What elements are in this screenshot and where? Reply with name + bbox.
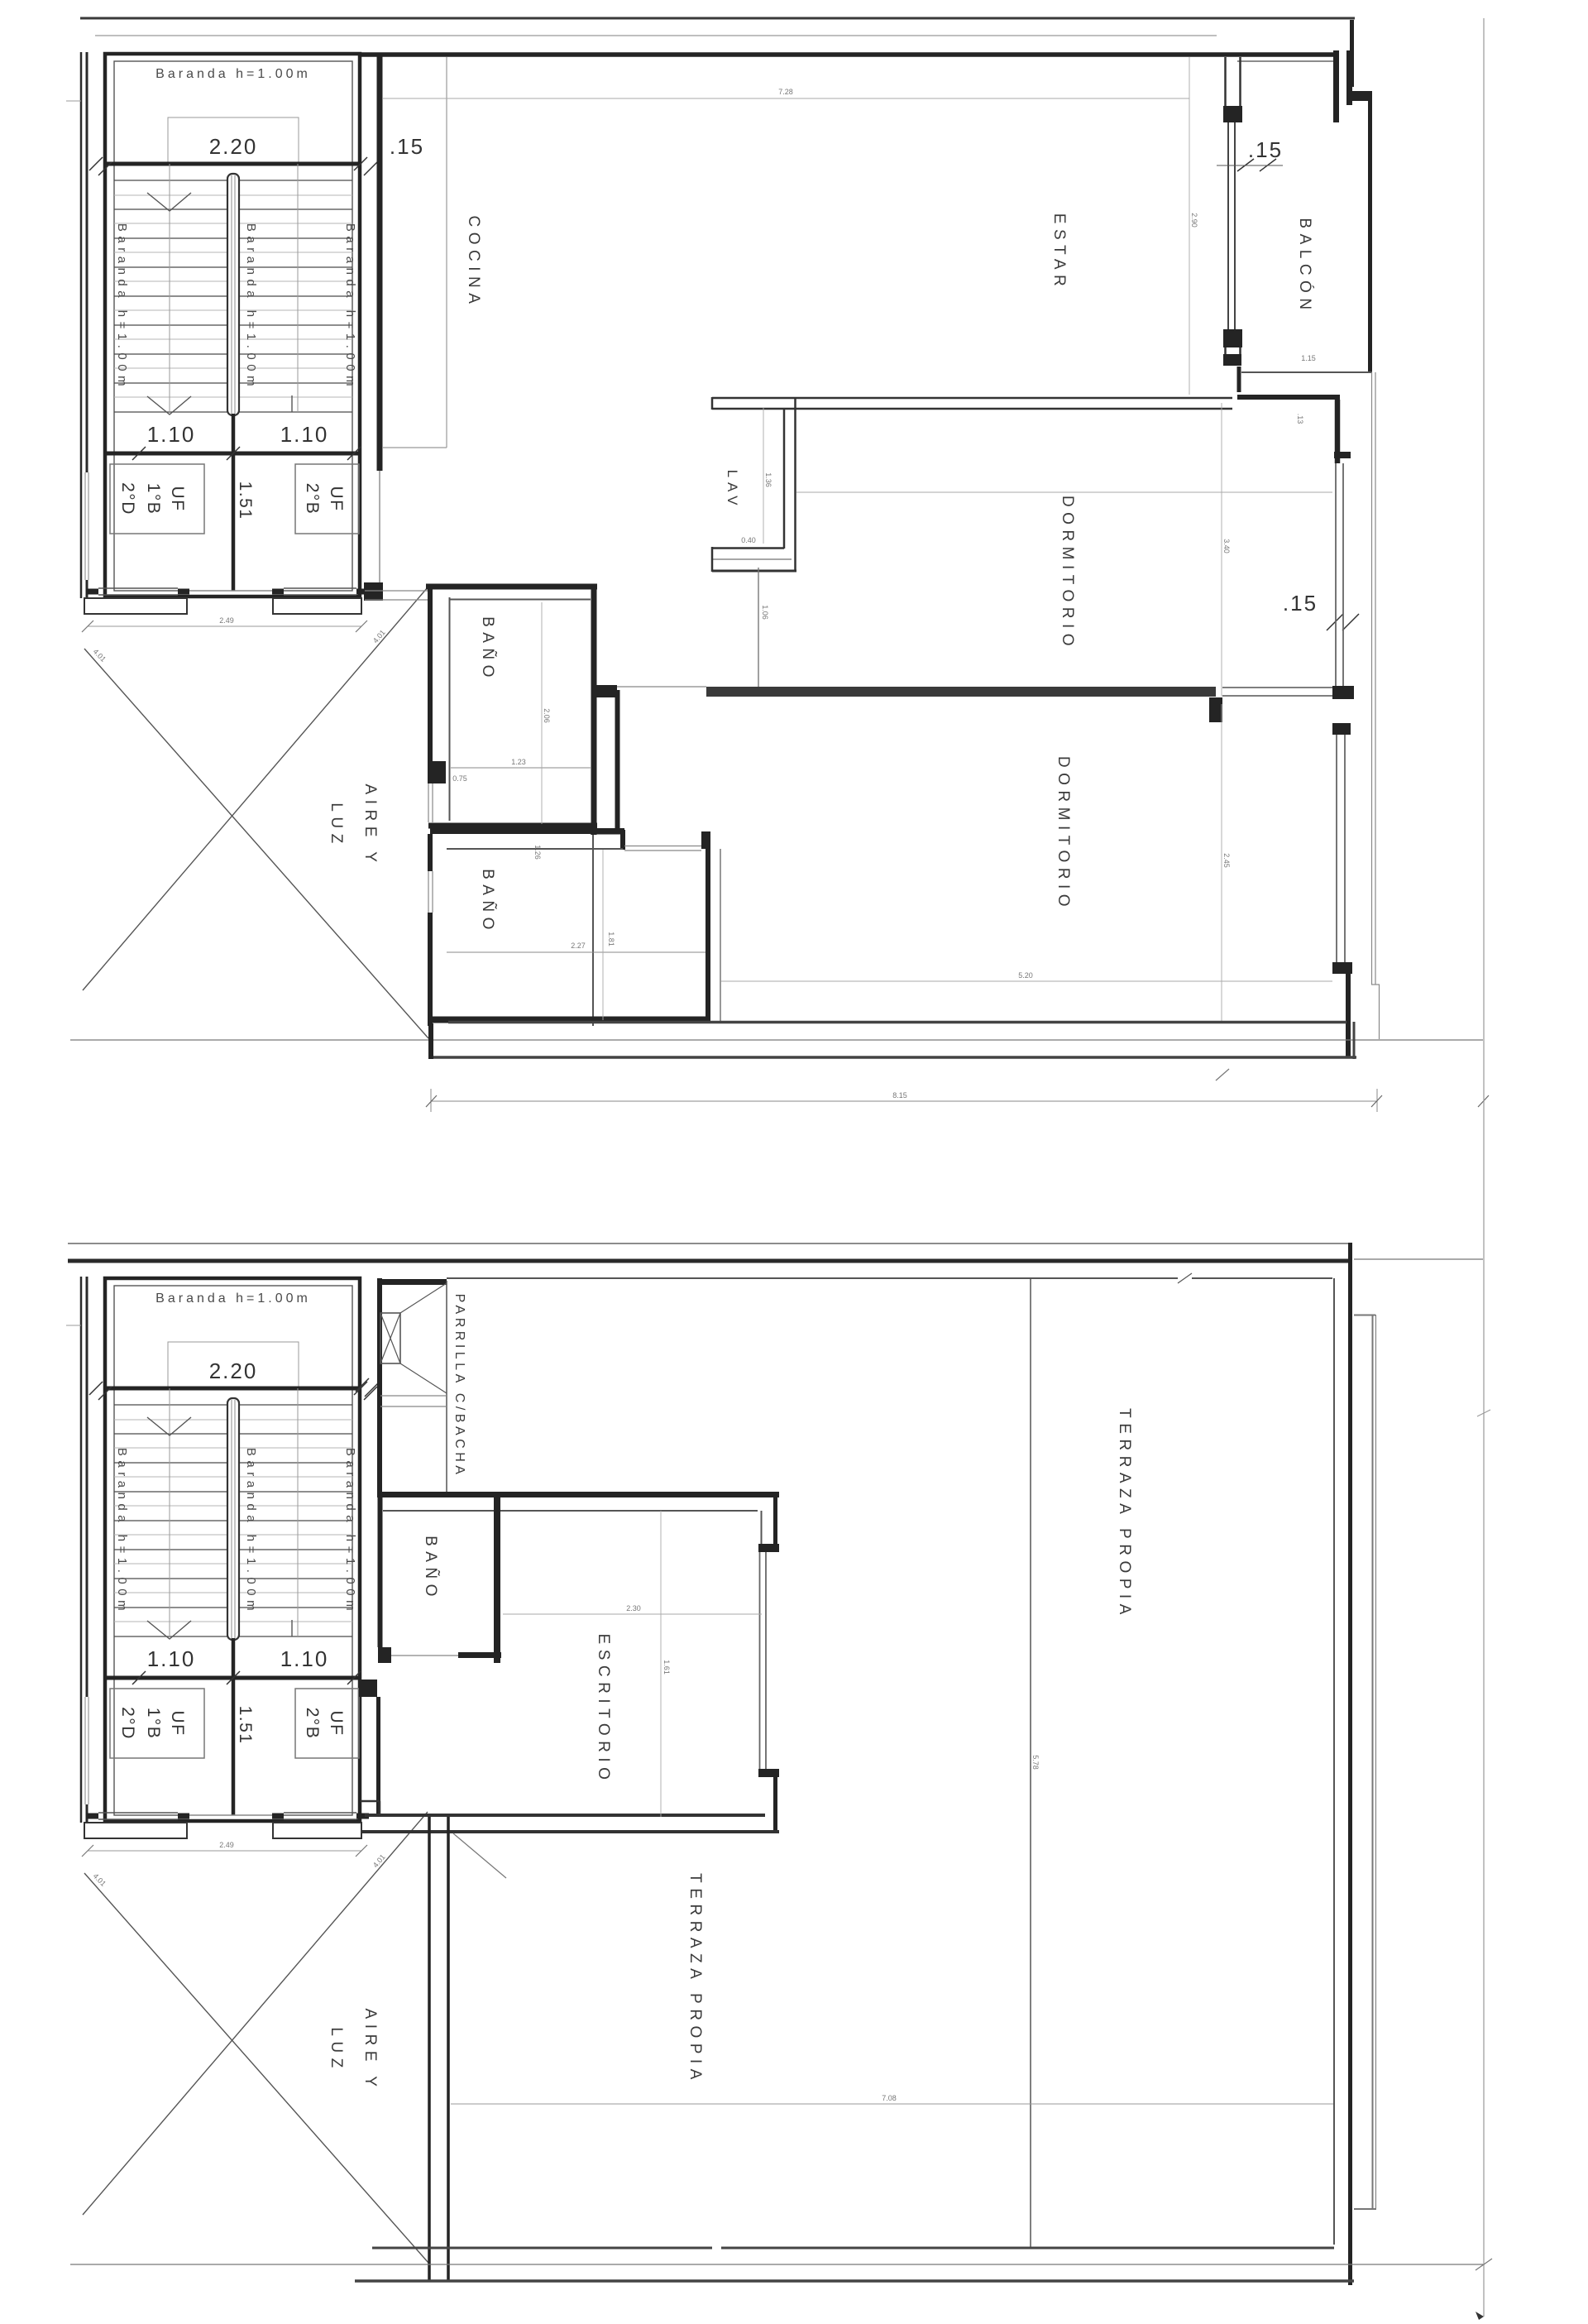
svg-text:2.45: 2.45 xyxy=(1222,853,1231,868)
svg-text:2.27: 2.27 xyxy=(571,942,586,950)
svg-text:ESCRITORIO: ESCRITORIO xyxy=(595,1634,612,1785)
svg-text:.15: .15 xyxy=(1248,137,1283,162)
svg-text:2.90: 2.90 xyxy=(1190,213,1198,228)
svg-text:TERRAZA PROPIA: TERRAZA PROPIA xyxy=(686,1873,704,2085)
svg-text:DORMITORIO: DORMITORIO xyxy=(1059,496,1076,651)
svg-text:BAÑO: BAÑO xyxy=(422,1536,440,1602)
svg-text:1.81: 1.81 xyxy=(607,932,615,946)
svg-text:ESTAR: ESTAR xyxy=(1050,213,1068,291)
svg-text:1.15: 1.15 xyxy=(1301,354,1316,362)
svg-text:2.30: 2.30 xyxy=(626,1604,641,1612)
svg-text:7.08: 7.08 xyxy=(882,2094,897,2102)
svg-text:.15: .15 xyxy=(390,134,424,159)
svg-text:0.75: 0.75 xyxy=(452,774,467,783)
svg-text:PARRILLA C/BACHA: PARRILLA C/BACHA xyxy=(452,1294,466,1478)
svg-text:.15: .15 xyxy=(1283,591,1318,616)
svg-text:3.40: 3.40 xyxy=(1222,539,1231,553)
svg-text:DORMITORIO: DORMITORIO xyxy=(1055,756,1072,912)
svg-text:7.28: 7.28 xyxy=(778,88,793,96)
svg-text:LAV: LAV xyxy=(725,470,740,510)
svg-text:BALCÓN: BALCÓN xyxy=(1296,218,1314,314)
svg-text:COCINA: COCINA xyxy=(465,216,482,309)
svg-text:5.20: 5.20 xyxy=(1018,971,1033,980)
svg-text:BAÑO: BAÑO xyxy=(479,869,497,935)
svg-text:BAÑO: BAÑO xyxy=(479,616,497,683)
svg-text:.13: .13 xyxy=(1296,414,1304,424)
svg-text:0.40: 0.40 xyxy=(741,536,756,544)
svg-text:2.06: 2.06 xyxy=(543,708,551,723)
svg-text:1.26: 1.26 xyxy=(533,845,542,860)
svg-text:5.78: 5.78 xyxy=(1031,1755,1040,1770)
svg-text:1.36: 1.36 xyxy=(764,472,772,487)
svg-text:8.15: 8.15 xyxy=(892,1091,907,1100)
svg-text:1.06: 1.06 xyxy=(761,605,769,620)
svg-text:1.23: 1.23 xyxy=(511,758,526,766)
svg-text:TERRAZA PROPIA: TERRAZA PROPIA xyxy=(1116,1408,1133,1620)
svg-text:1.61: 1.61 xyxy=(662,1660,671,1675)
